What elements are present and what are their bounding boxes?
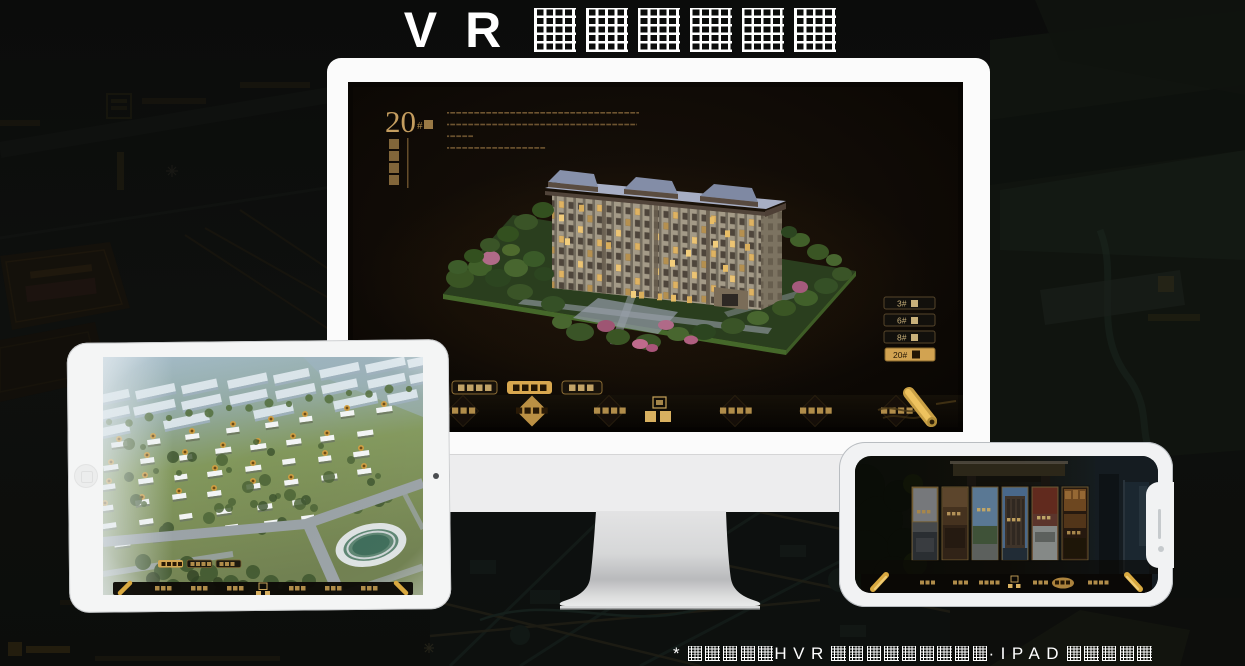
- svg-text:8#: 8#: [897, 333, 907, 343]
- svg-text:3#: 3#: [897, 299, 907, 309]
- svg-text:20#: 20#: [893, 350, 907, 360]
- svg-text:#: #: [417, 120, 423, 132]
- svg-text:20: 20: [385, 104, 416, 139]
- svg-text:6#: 6#: [897, 316, 907, 326]
